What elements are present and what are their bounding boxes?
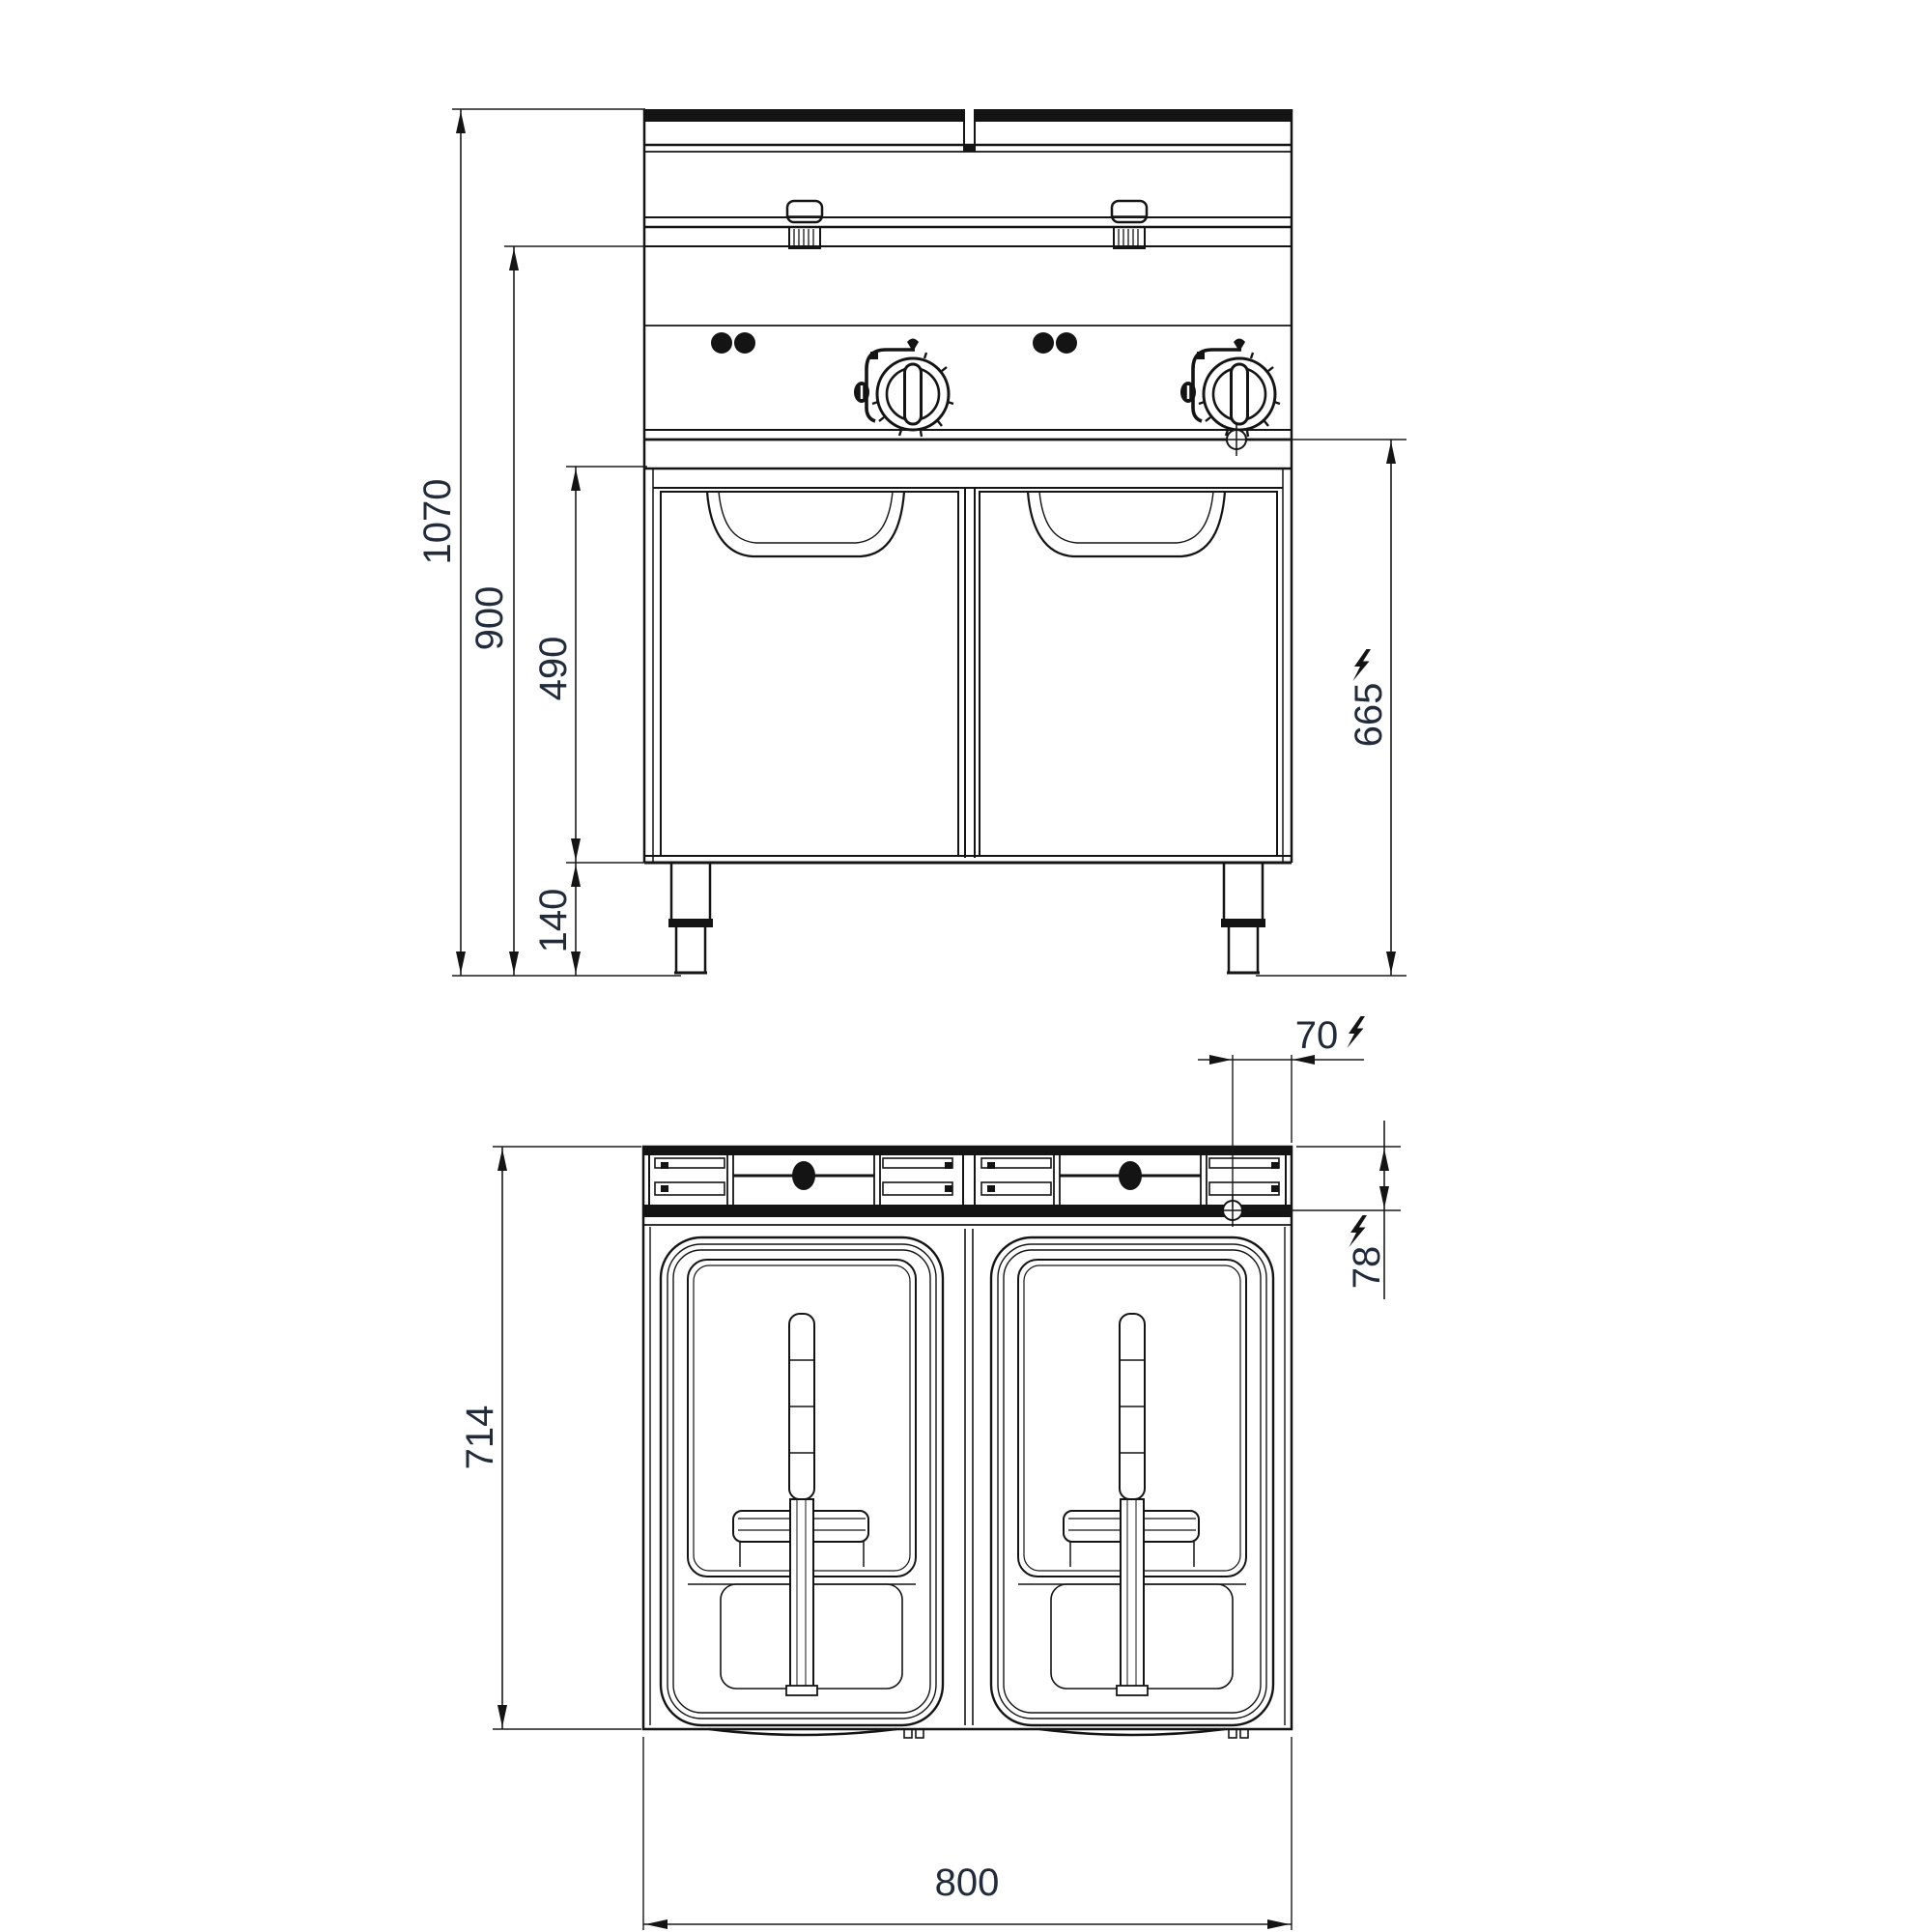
lid-hinge-dot: [1119, 1161, 1142, 1190]
sheet-background: [0, 0, 1932, 1932]
dim-label-140: 140: [532, 889, 575, 953]
dim-label-800: 800: [935, 1861, 1000, 1904]
fryer-technical-drawing: 1070 900 490 140: [0, 0, 1932, 1932]
pilot-light-icon: [711, 332, 732, 354]
dim-label-714: 714: [459, 1406, 501, 1470]
dim-label-490: 490: [532, 637, 575, 701]
dim-label-665: 665: [1348, 683, 1390, 748]
dim-label-70: 70: [1295, 1014, 1339, 1057]
dim-label-78: 78: [1346, 1246, 1388, 1290]
lid-hinge-dot: [792, 1161, 815, 1190]
pilot-light-icon: [734, 332, 755, 354]
pilot-light-icon: [1056, 332, 1077, 354]
drawing-sheet: 1070 900 490 140: [0, 0, 1932, 1932]
dim-label-1070: 1070: [416, 479, 459, 565]
pilot-light-icon: [1033, 332, 1054, 354]
dim-label-900: 900: [469, 586, 511, 651]
